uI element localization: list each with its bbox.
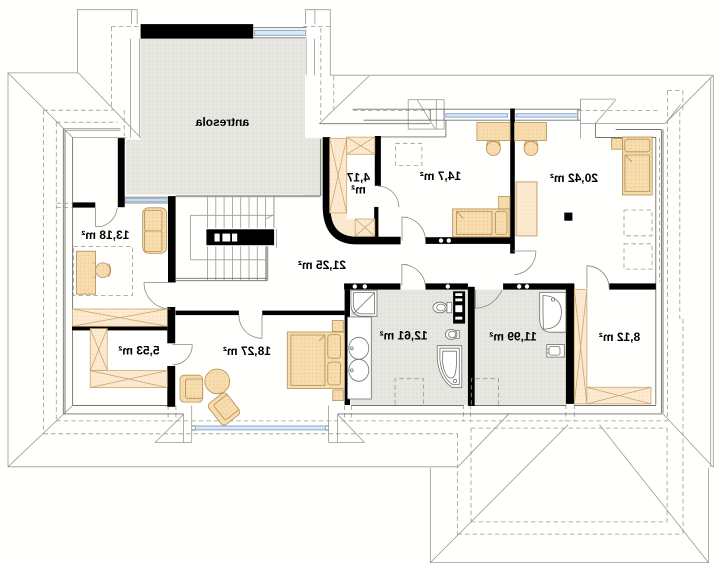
svg-text:11,99 m²: 11,99 m²	[489, 330, 536, 344]
svg-text:21,25 m²: 21,25 m²	[298, 258, 346, 272]
svg-text:20,42 m²: 20,42 m²	[550, 171, 598, 185]
svg-text:18,27 m²: 18,27 m²	[223, 344, 271, 358]
svg-text:antresola: antresola	[195, 115, 249, 129]
svg-text:14,7 m²: 14,7 m²	[420, 169, 461, 183]
svg-text:5,53 m²: 5,53 m²	[118, 343, 159, 357]
svg-text:12,61 m²: 12,61 m²	[380, 329, 428, 343]
svg-text:m²: m²	[351, 183, 366, 197]
svg-text:8,12 m²: 8,12 m²	[599, 330, 640, 344]
svg-text:13,18 m²: 13,18 m²	[81, 228, 129, 242]
